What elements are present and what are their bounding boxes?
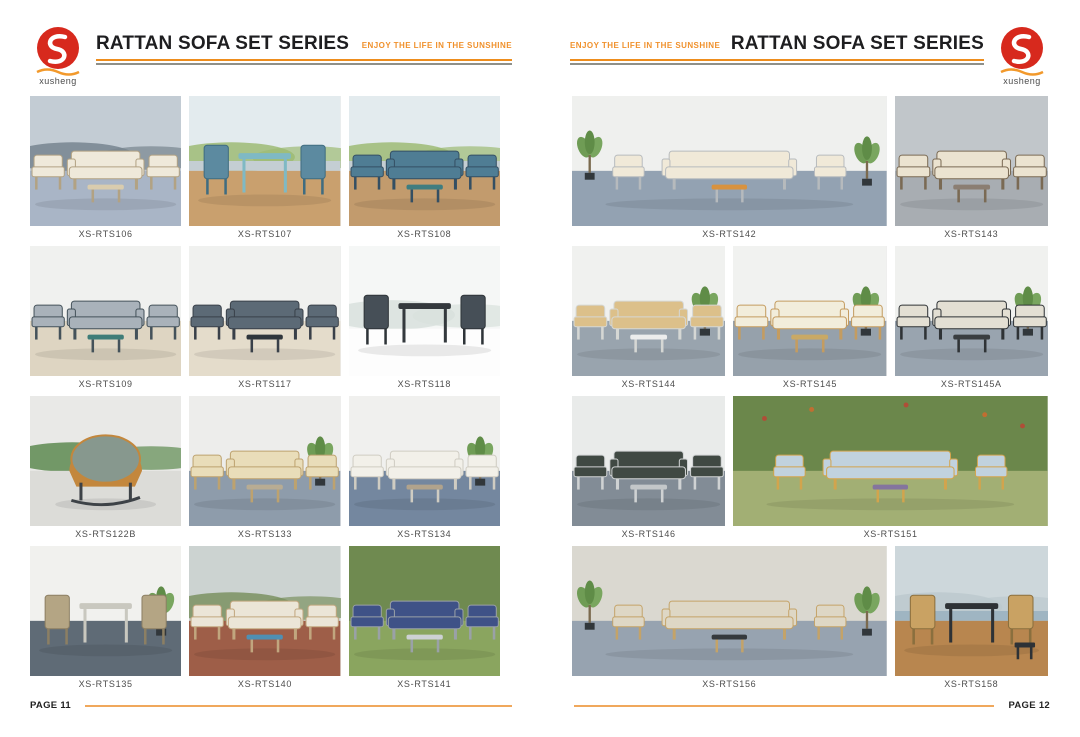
product-grid-right: XS-RTS142 XS-RTS143 xyxy=(572,96,1048,690)
product-card: XS-RTS140 xyxy=(189,546,340,690)
product-card: XS-RTS118 xyxy=(349,246,500,390)
rule-gray xyxy=(96,63,512,65)
product-photo xyxy=(895,96,1048,226)
product-model-label: XS-RTS144 xyxy=(572,379,725,390)
product-model-label: XS-RTS118 xyxy=(349,379,500,390)
product-photo xyxy=(349,96,500,226)
catalog-spread: xusheng RATTAN SOFA SET SERIES ENJOY THE… xyxy=(0,0,1080,737)
page-footer-left: PAGE 11 xyxy=(30,700,512,711)
title-block-right: ENJOY THE LIFE IN THE SUNSHINE RATTAN SO… xyxy=(570,24,984,65)
page-number-right: PAGE 12 xyxy=(1008,700,1050,711)
logo-wordmark: xusheng xyxy=(39,76,77,86)
product-card: XS-RTS134 xyxy=(349,396,500,540)
product-grid-left: XS-RTS106 XS-RTS107 xyxy=(30,96,500,690)
footer-rule-right xyxy=(574,705,994,707)
product-model-label: XS-RTS117 xyxy=(189,379,340,390)
product-model-label: XS-RTS143 xyxy=(895,229,1048,240)
product-photo xyxy=(572,396,725,526)
xusheng-logo-icon: xusheng xyxy=(994,24,1050,88)
tagline-right: ENJOY THE LIFE IN THE SUNSHINE xyxy=(570,41,720,53)
product-model-label: XS-RTS122B xyxy=(30,529,181,540)
product-card: XS-RTS145A xyxy=(895,246,1048,390)
product-photo xyxy=(733,246,886,376)
product-card: XS-RTS106 xyxy=(30,96,181,240)
product-card: XS-RTS146 xyxy=(572,396,725,540)
xusheng-logo: xusheng xyxy=(994,24,1050,93)
product-model-label: XS-RTS135 xyxy=(30,679,181,690)
product-photo xyxy=(30,396,181,526)
product-photo xyxy=(349,246,500,376)
header-rules-right xyxy=(570,59,984,65)
product-card: XS-RTS158 xyxy=(895,546,1048,690)
xusheng-logo: xusheng xyxy=(30,24,86,93)
header-rules-left xyxy=(96,59,512,65)
product-card: XS-RTS107 xyxy=(189,96,340,240)
product-model-label: XS-RTS158 xyxy=(895,679,1048,690)
tagline-left: ENJOY THE LIFE IN THE SUNSHINE xyxy=(362,41,512,53)
product-model-label: XS-RTS145 xyxy=(733,379,886,390)
catalog-page-12: ENJOY THE LIFE IN THE SUNSHINE RATTAN SO… xyxy=(540,0,1080,737)
product-model-label: XS-RTS140 xyxy=(189,679,340,690)
page-header-right: ENJOY THE LIFE IN THE SUNSHINE RATTAN SO… xyxy=(540,0,1080,93)
product-photo xyxy=(572,246,725,376)
product-photo xyxy=(30,246,181,376)
product-card: XS-RTS133 xyxy=(189,396,340,540)
product-card: XS-RTS108 xyxy=(349,96,500,240)
logo-wordmark: xusheng xyxy=(1003,76,1041,86)
product-card: XS-RTS156 xyxy=(572,546,887,690)
product-photo xyxy=(189,96,340,226)
product-photo xyxy=(572,546,887,676)
series-title-right: RATTAN SOFA SET SERIES xyxy=(731,34,984,53)
product-model-label: XS-RTS108 xyxy=(349,229,500,240)
product-model-label: XS-RTS107 xyxy=(189,229,340,240)
product-model-label: XS-RTS151 xyxy=(733,529,1048,540)
product-photo xyxy=(349,546,500,676)
xusheng-logo-icon: xusheng xyxy=(30,24,86,88)
product-photo xyxy=(189,246,340,376)
product-card: XS-RTS143 xyxy=(895,96,1048,240)
rule-orange xyxy=(570,59,984,61)
product-card: XS-RTS141 xyxy=(349,546,500,690)
product-model-label: XS-RTS141 xyxy=(349,679,500,690)
product-photo xyxy=(733,396,1048,526)
product-card: XS-RTS117 xyxy=(189,246,340,390)
product-photo xyxy=(349,396,500,526)
product-photo xyxy=(30,96,181,226)
product-model-label: XS-RTS142 xyxy=(572,229,887,240)
page-number-left: PAGE 11 xyxy=(30,700,71,711)
page-footer-right: PAGE 12 xyxy=(574,700,1050,711)
page-header-left: xusheng RATTAN SOFA SET SERIES ENJOY THE… xyxy=(0,0,540,93)
product-model-label: XS-RTS134 xyxy=(349,529,500,540)
rule-orange xyxy=(96,59,512,61)
product-model-label: XS-RTS146 xyxy=(572,529,725,540)
product-card: XS-RTS151 xyxy=(733,396,1048,540)
product-card: XS-RTS142 xyxy=(572,96,887,240)
product-photo xyxy=(189,546,340,676)
product-photo xyxy=(30,546,181,676)
product-model-label: XS-RTS145A xyxy=(895,379,1048,390)
product-model-label: XS-RTS109 xyxy=(30,379,181,390)
product-card: XS-RTS144 xyxy=(572,246,725,390)
product-photo xyxy=(189,396,340,526)
product-card: XS-RTS145 xyxy=(733,246,886,390)
product-card: XS-RTS122B xyxy=(30,396,181,540)
product-card: XS-RTS109 xyxy=(30,246,181,390)
product-photo xyxy=(895,246,1048,376)
product-model-label: XS-RTS156 xyxy=(572,679,887,690)
footer-rule-left xyxy=(85,705,512,707)
series-title-left: RATTAN SOFA SET SERIES xyxy=(96,34,349,53)
product-photo xyxy=(895,546,1048,676)
title-block-left: RATTAN SOFA SET SERIES ENJOY THE LIFE IN… xyxy=(96,24,512,65)
product-model-label: XS-RTS106 xyxy=(30,229,181,240)
catalog-page-11: xusheng RATTAN SOFA SET SERIES ENJOY THE… xyxy=(0,0,540,737)
rule-gray xyxy=(570,63,984,65)
product-model-label: XS-RTS133 xyxy=(189,529,340,540)
product-photo xyxy=(572,96,887,226)
product-card: XS-RTS135 xyxy=(30,546,181,690)
